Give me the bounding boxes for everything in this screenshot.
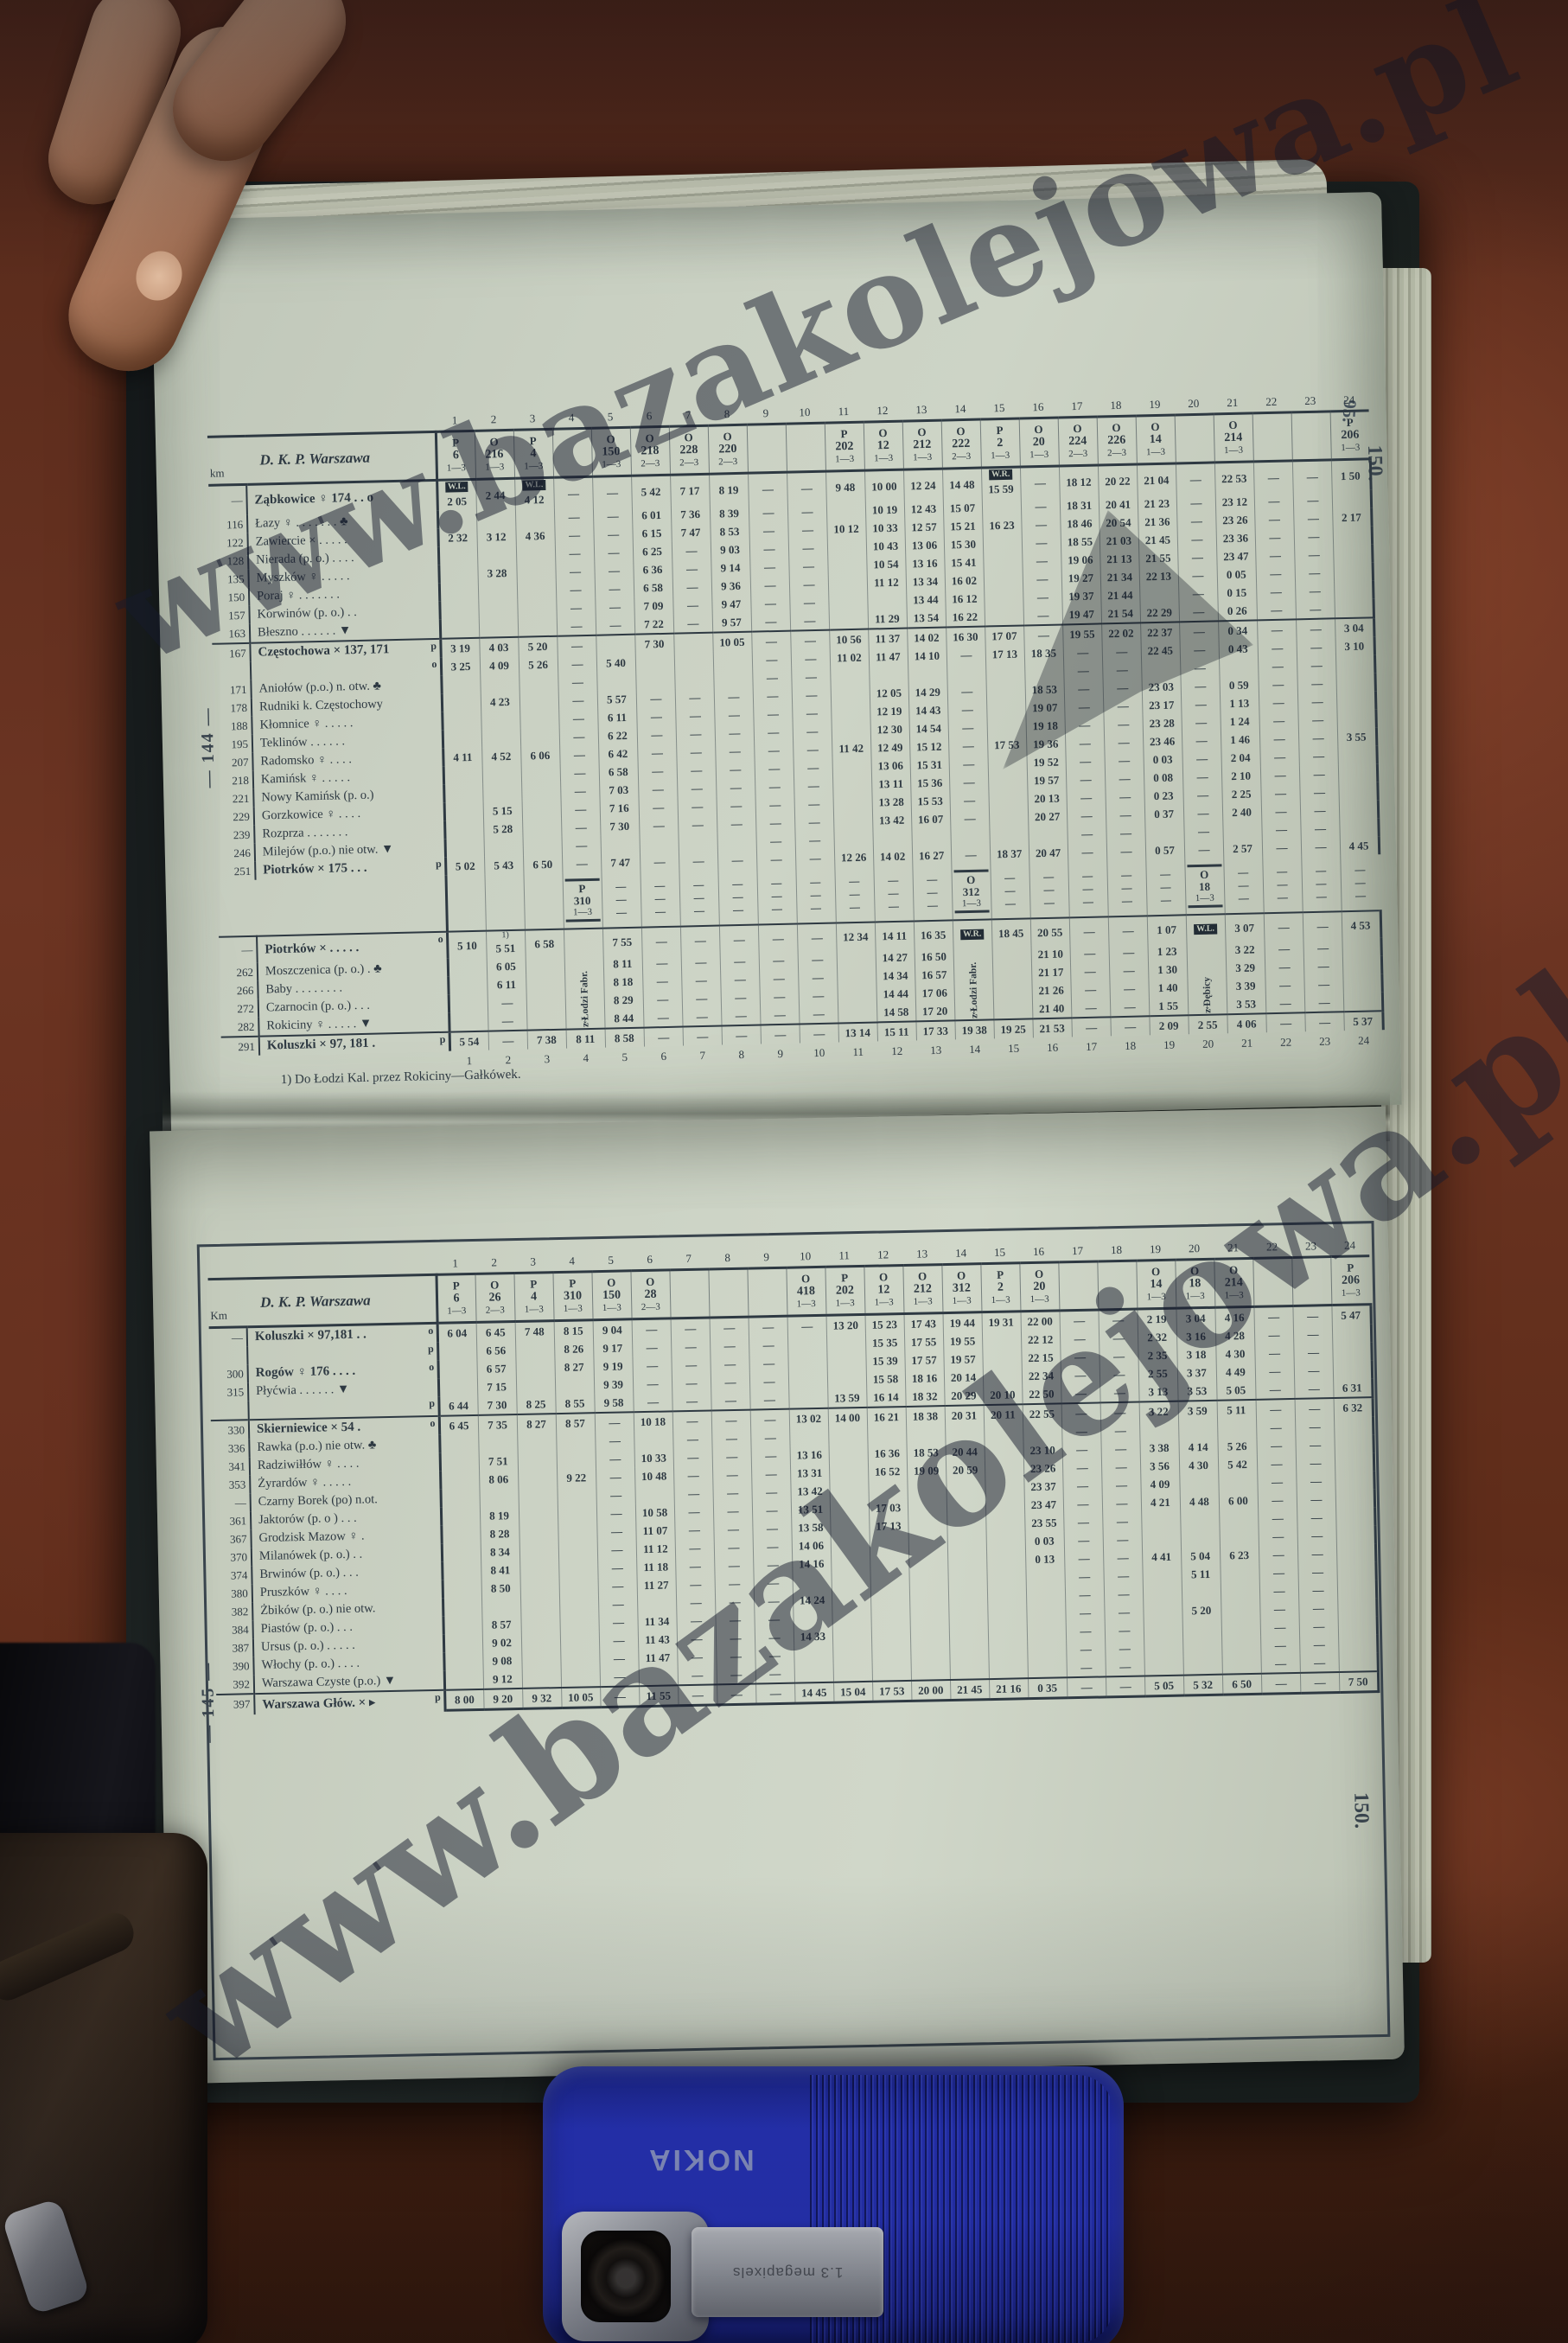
timetable-bottom: 123456789101112131415161718192021222324K… (207, 1238, 1381, 1716)
timetable-grid: 123456789101112131415161718192021222324K… (207, 1238, 1380, 1716)
metal-clasp (1, 2198, 91, 2315)
photo-of-timetable-book: — 144 — 150. 95. 12345678910111213141516… (0, 0, 1568, 2343)
timetable-top: 123456789101112131415161718192021222324k… (207, 393, 1386, 1073)
leather-strap (0, 1906, 140, 2006)
camera-label: 1.3 megapixels (732, 2263, 843, 2281)
camera-label-plate: 1.3 megapixels (692, 2227, 883, 2317)
hand (35, 0, 363, 450)
page-145: — 145 — 150. 10 123456789101112131415161… (150, 1107, 1405, 2084)
leather-case (0, 1833, 207, 2343)
route-number-150-bottom: 150. (1348, 1792, 1373, 1829)
camera-frame (562, 2212, 709, 2341)
nokia-phone: NOKIA 1.3 megapixels (543, 2066, 1124, 2343)
timetable-grid: 123456789101112131415161718192021222324k… (207, 393, 1384, 1073)
camera-module: 1.3 megapixels (562, 2212, 883, 2341)
camera-lens (581, 2231, 671, 2322)
phone-brand-logo: NOKIA (647, 2142, 755, 2176)
